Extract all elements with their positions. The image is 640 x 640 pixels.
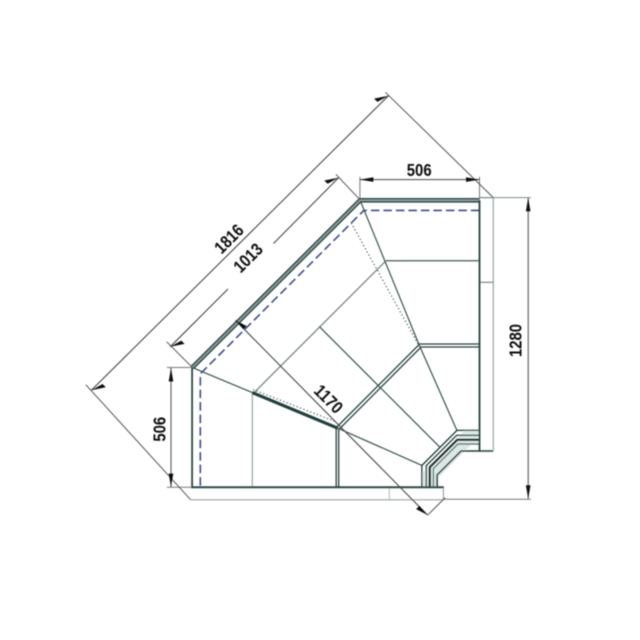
svg-text:1170: 1170 xyxy=(310,381,347,418)
svg-text:1280: 1280 xyxy=(506,324,525,357)
svg-text:506: 506 xyxy=(407,161,432,180)
svg-text:506: 506 xyxy=(151,417,170,442)
